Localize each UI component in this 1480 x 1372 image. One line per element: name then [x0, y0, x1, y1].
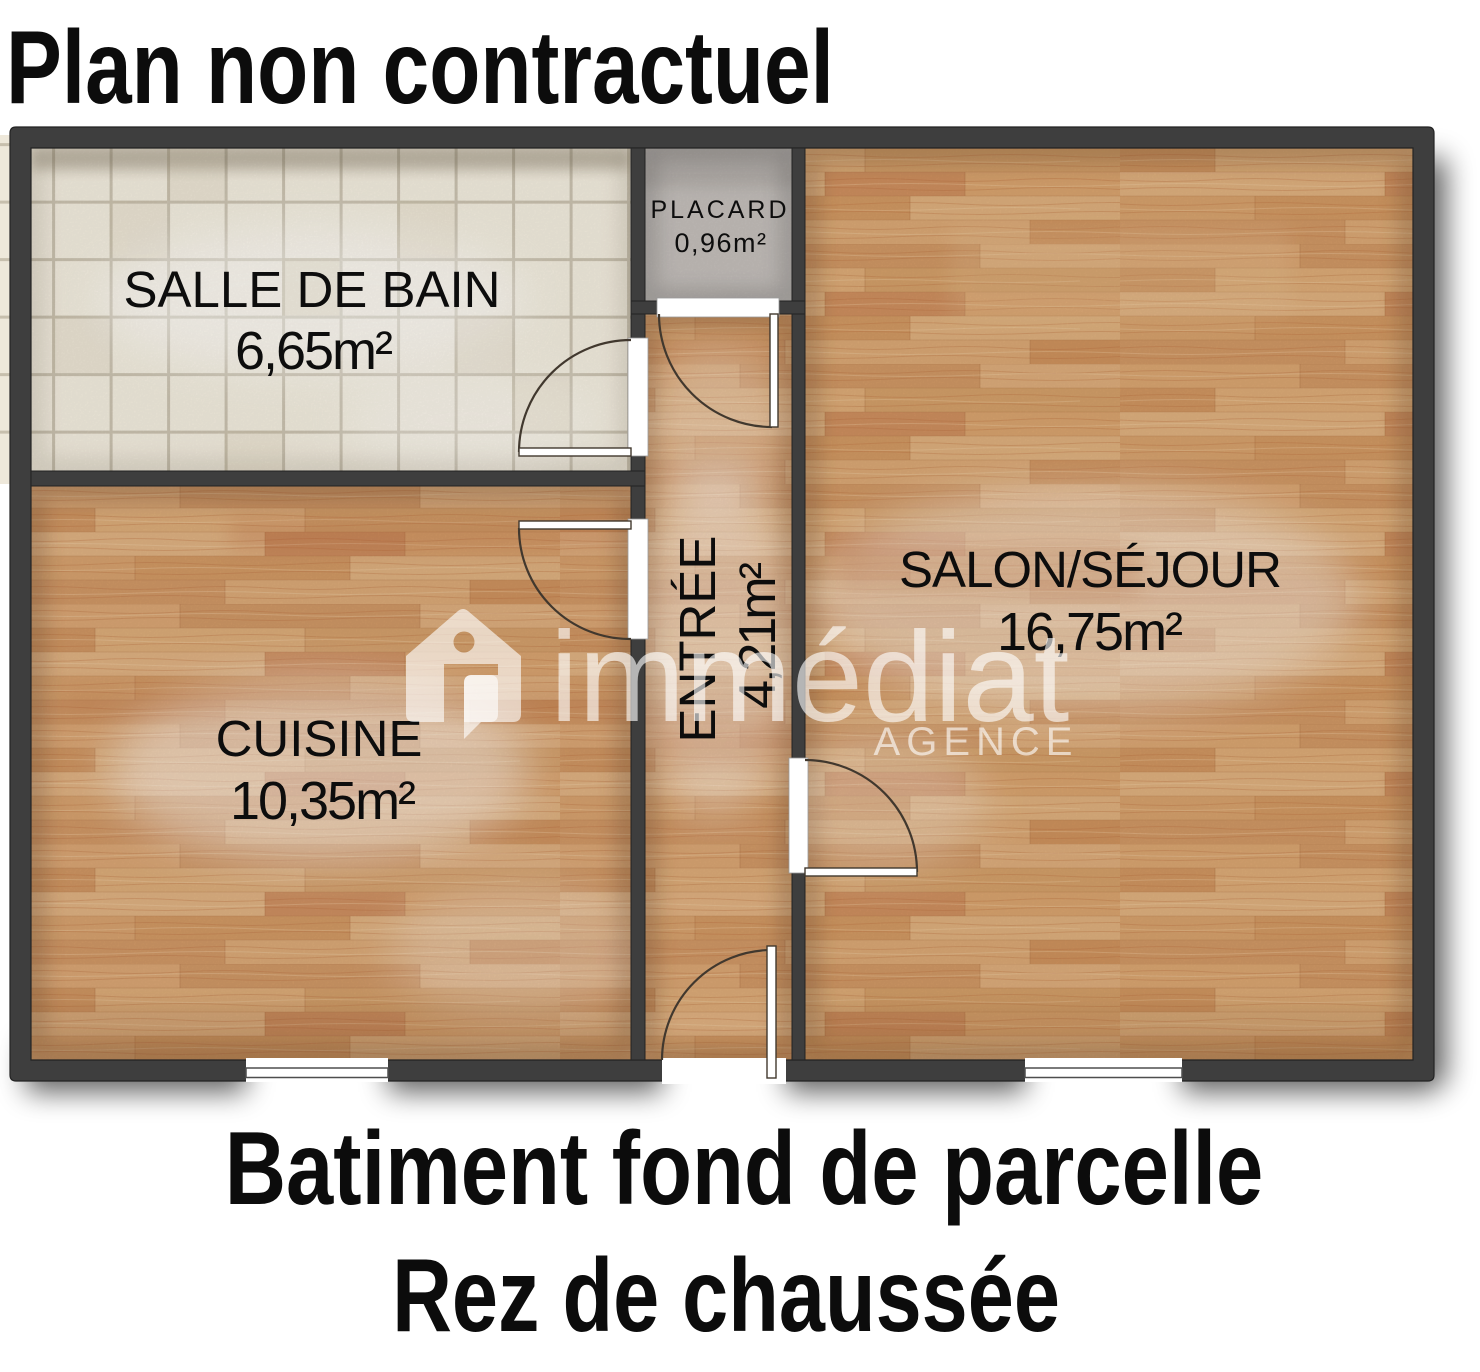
- svg-text:SALLE DE BAIN: SALLE DE BAIN: [124, 261, 501, 318]
- svg-text:6,65m²: 6,65m²: [235, 321, 392, 381]
- svg-text:0,96m²: 0,96m²: [674, 228, 767, 258]
- svg-text:10,35m²: 10,35m²: [230, 771, 415, 831]
- svg-text:Rez de chaussée: Rez de chaussée: [392, 1237, 1060, 1353]
- svg-text:Plan non contractuel: Plan non contractuel: [6, 10, 834, 126]
- svg-text:CUISINE: CUISINE: [216, 710, 423, 767]
- svg-text:SALON/SÉJOUR: SALON/SÉJOUR: [899, 541, 1281, 598]
- svg-text:Batiment fond de parcelle: Batiment fond de parcelle: [225, 1111, 1264, 1227]
- svg-text:AGENCE: AGENCE: [874, 720, 1079, 764]
- svg-text:PLACARD: PLACARD: [650, 196, 789, 224]
